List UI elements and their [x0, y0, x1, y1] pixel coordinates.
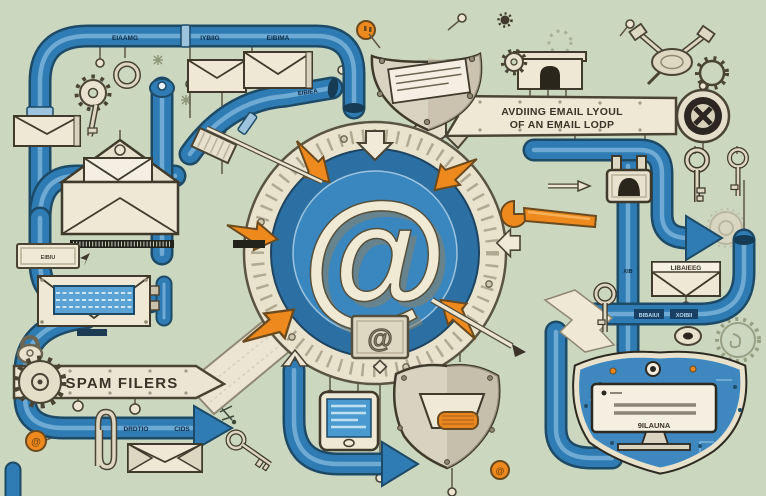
- pipe-label: DRDTIO: [124, 426, 149, 433]
- tablet-icon: [320, 392, 378, 450]
- left-plate: EIBIU: [17, 244, 90, 268]
- plate-label: EIBIU: [41, 255, 56, 261]
- at-badge-symbol: @: [367, 323, 392, 353]
- arch-door: [540, 66, 560, 89]
- eye-icon: [646, 362, 660, 376]
- pipe-label: IYBIIG: [200, 35, 220, 42]
- pipe-label: XOIBII: [676, 313, 693, 319]
- pipe-label: CIDS: [174, 426, 190, 433]
- glyph-strip: [77, 329, 107, 336]
- monitor-base: [618, 444, 690, 450]
- pipe-collar: [181, 25, 190, 47]
- barcode-strip: [70, 240, 174, 248]
- flat-envelope: [14, 116, 80, 146]
- glyph-strip: [233, 240, 265, 248]
- banner-text-line1: AVDIING EMAIL LYOUL: [501, 106, 623, 118]
- keyboard-envelope: [38, 276, 150, 336]
- banner-text-line2: OF AN EMAIL LODP: [510, 119, 615, 131]
- at-symbol: @: [302, 171, 448, 339]
- pin-icon: [115, 145, 125, 155]
- pipe-label: EIBIMA: [267, 35, 290, 42]
- spam-banner: SPAM FILERS: [14, 358, 224, 406]
- pipe-collar: [27, 107, 53, 116]
- spam-banner-text: SPAM FILERS: [66, 375, 179, 392]
- small-envelope: [128, 444, 202, 472]
- envelope-label: LIBAIEEG: [671, 265, 702, 272]
- pipe-open-end: [343, 103, 365, 113]
- pipe-label: BIBAIUI: [639, 313, 660, 319]
- oval-node: [675, 327, 701, 345]
- pipe-label: XIB: [623, 269, 632, 275]
- coin-symbol: @: [496, 466, 505, 476]
- pipe-label: EIAAMG: [112, 35, 138, 42]
- email-loop-illustration: EIAAMG IYBIIG EIBIMA EIBIEA BIBAIUI XOIB…: [0, 0, 766, 496]
- pipe-open-end: [733, 235, 755, 245]
- coin-symbol: @: [31, 437, 41, 448]
- labeled-envelope: LIBAIEEG: [652, 262, 720, 296]
- illustration-canvas: EIAAMG IYBIIG EIBIMA EIBIEA BIBAIUI XOIB…: [0, 0, 766, 496]
- monitor-label: 9ILAUNA: [638, 421, 671, 430]
- monitor-stand: [642, 432, 668, 444]
- periscope-cap: [150, 79, 174, 97]
- coin-icon: @: [491, 461, 509, 479]
- coin-icon: @: [26, 431, 46, 451]
